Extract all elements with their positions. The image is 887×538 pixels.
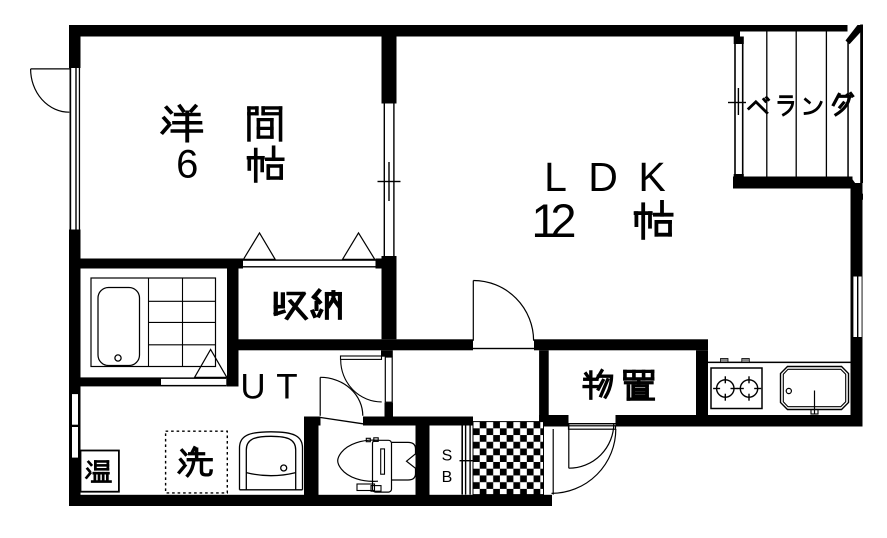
- svg-text:2: 2: [550, 194, 576, 247]
- svg-text:U: U: [240, 368, 265, 407]
- svg-text:T: T: [276, 368, 297, 407]
- svg-text:K: K: [638, 154, 665, 200]
- svg-text:B: B: [442, 469, 453, 486]
- svg-text:S: S: [442, 448, 453, 465]
- svg-text:6: 6: [176, 143, 198, 187]
- svg-text:D: D: [588, 154, 618, 200]
